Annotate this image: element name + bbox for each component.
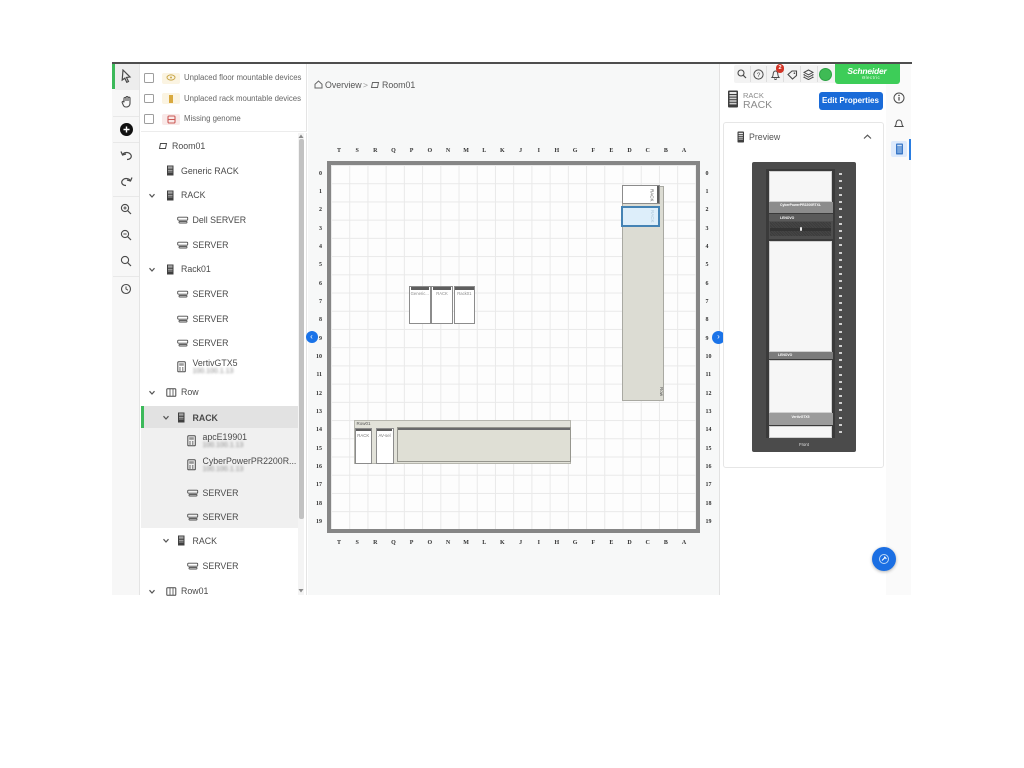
svg-text:?: ? — [757, 72, 761, 79]
